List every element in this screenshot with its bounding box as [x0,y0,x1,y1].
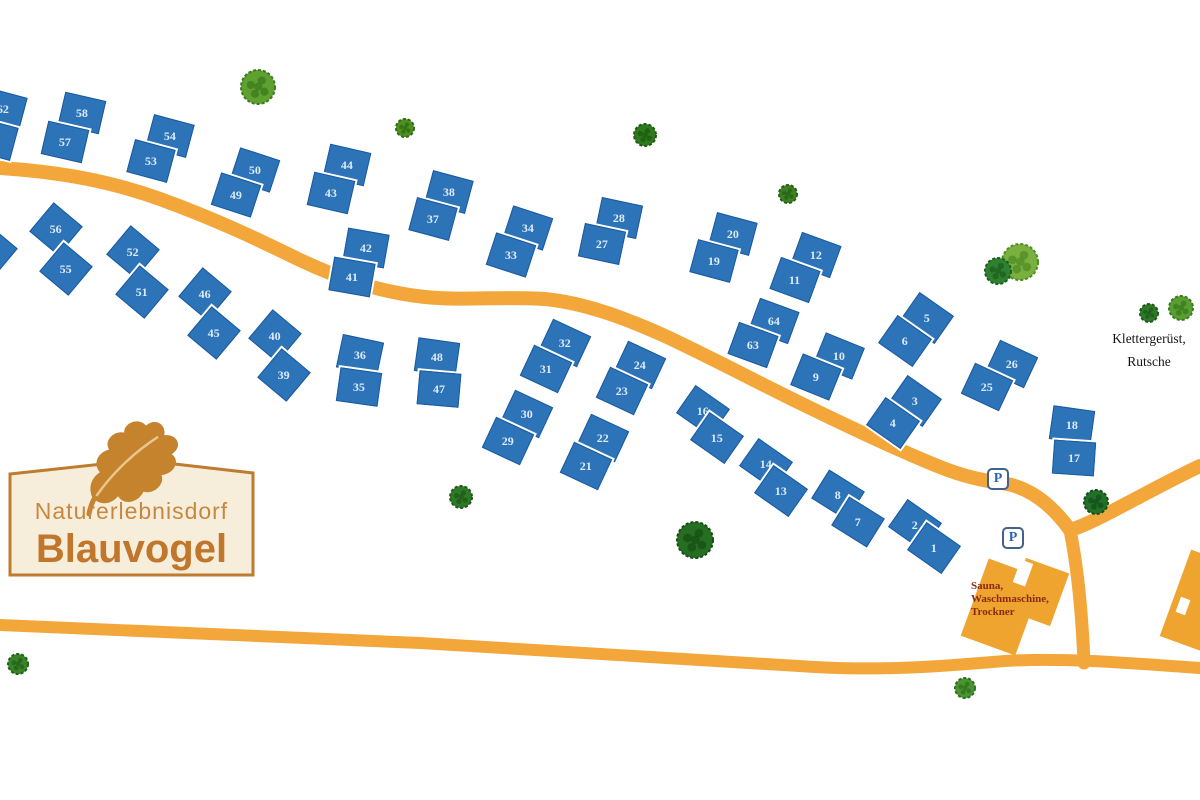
house-47: 47 [417,370,462,408]
house-number: 31 [540,362,552,377]
logo-name: Blauvogel [10,527,253,572]
house-45: 45 [187,306,241,360]
house-number: 9 [813,370,819,385]
parking-icon: P [987,468,1009,490]
house-52: 52 [106,225,160,279]
house-39: 39 [257,348,311,402]
logo-title: Naturerlebnisdorf [10,498,253,525]
house-number: 55 [60,262,72,277]
house-56: 56 [29,202,83,256]
playground-label: Klettergerüst, Rutsche [1093,327,1200,373]
house-41: 41 [328,257,375,298]
house-number: 8 [835,488,841,503]
houses-layer: 6258575453504944433837343328272019121156… [0,0,1200,800]
house-number: 42 [360,241,372,256]
house-number: 17 [1068,451,1080,466]
house-number: 37 [427,212,439,227]
house-number: 36 [354,348,366,363]
house-number: 39 [278,368,290,383]
house-55: 55 [39,242,93,296]
house-number: 19 [708,254,720,269]
sauna-label-line2: Waschmaschine, [971,593,1067,606]
house-number: 49 [230,188,242,203]
house-number: 2 [912,518,918,533]
house-number: 29 [502,434,514,449]
house-number: 52 [127,245,139,260]
house-number: 45 [208,326,220,341]
house-number: 7 [855,515,861,530]
house-35: 35 [336,367,382,407]
house-number: 4 [890,416,896,431]
house-partial [0,224,18,278]
house-number: 24 [634,358,646,373]
house-51: 51 [115,265,169,319]
house-number: 1 [931,541,937,556]
house-number: 58 [76,106,88,121]
house-number: 44 [341,158,353,173]
house-number: 47 [433,382,445,397]
sauna-label-line1: Sauna, [971,580,1067,593]
house-number: 54 [164,129,176,144]
parking-icon: P [1002,527,1024,549]
house-number: 3 [912,394,918,409]
house-number: 50 [249,163,261,178]
house-number: 41 [346,270,358,285]
house-number: 12 [810,248,822,263]
house-number: 6 [902,334,908,349]
house-number: 20 [727,227,739,242]
house-number: 27 [596,237,608,252]
house-number: 38 [443,185,455,200]
house-number: 21 [580,459,592,474]
house-number: 40 [269,329,281,344]
sauna-label: Sauna, Waschmaschine, Trockner [971,580,1067,619]
house-number: 48 [431,350,443,365]
house-number: 22 [597,431,609,446]
house-number: 63 [747,338,759,353]
logo-text: Naturerlebnisdorf Blauvogel [10,456,253,572]
house-number: 33 [505,248,517,263]
house-number: 30 [521,407,533,422]
house-number: 5 [924,311,930,326]
house-number: 64 [768,314,780,329]
house-number: 46 [199,287,211,302]
house-number: 32 [559,336,571,351]
house-17: 17 [1052,440,1096,477]
house-number: 13 [775,484,787,499]
house-number: 23 [616,384,628,399]
house-27: 27 [578,223,626,265]
house-number: 43 [325,186,337,201]
house-number: 11 [789,273,800,288]
house-number: 25 [981,380,993,395]
house-number: 28 [613,211,625,226]
house-number: 35 [353,380,365,395]
house-number: 18 [1066,418,1078,433]
house-number: 10 [833,349,845,364]
house-number: 56 [50,222,62,237]
house-number: 26 [1006,357,1018,372]
playground-label-line1: Klettergerüst, [1093,327,1200,350]
house-number: 15 [711,431,723,446]
house-number: 34 [522,221,534,236]
site-map: 6258575453504944433837343328272019121156… [0,0,1200,800]
house-number: 62 [0,102,9,117]
sauna-label-line3: Trockner [971,606,1067,619]
house-number: 57 [59,135,71,150]
house-number: 51 [136,285,148,300]
playground-label-line2: Rutsche [1093,350,1200,373]
house-number: 53 [145,154,157,169]
